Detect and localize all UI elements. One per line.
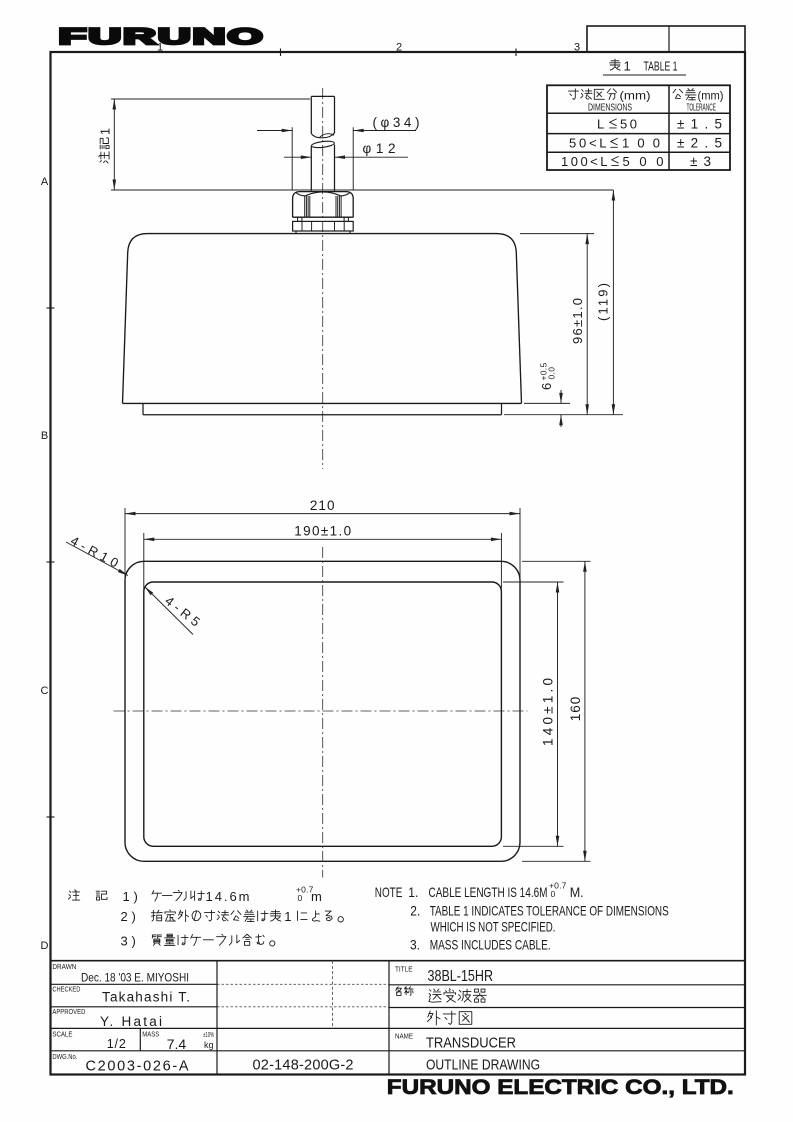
svg-text:(mm): (mm) [698,89,724,103]
svg-text:B: B [41,430,48,442]
svg-text:96±1.0: 96±1.0 [570,298,585,344]
svg-text:2: 2 [396,42,402,54]
svg-text:3: 3 [121,934,128,949]
svg-text:Y. Hatai: Y. Hatai [100,1014,162,1029]
svg-text:DRAWN: DRAWN [52,964,76,971]
svg-text:D: D [41,940,49,952]
svg-text:SCALE: SCALE [52,1032,72,1039]
svg-text:TOLERANCE: TOLERANCE [687,102,717,113]
svg-text:100: 100 [622,136,660,151]
svg-text:Takahashi T.: Takahashi T. [102,990,190,1005]
svg-text:1: 1 [284,909,291,924]
svg-text:WHICH IS NOT SPECIFIED.: WHICH IS NOT SPECIFIED. [431,919,556,935]
svg-text:7.4: 7.4 [167,1036,187,1052]
svg-text:1: 1 [123,889,130,904]
svg-text:CABLE LENGTH IS 14.6M: CABLE LENGTH IS 14.6M [429,884,548,900]
svg-text:APPROVED: APPROVED [52,1009,85,1016]
svg-text:3.: 3. [410,937,420,953]
svg-text:φ12: φ12 [363,141,396,156]
svg-text:kg: kg [204,1040,214,1050]
svg-text:M.: M. [570,884,584,900]
svg-text:DIMENSIONS: DIMENSIONS [588,102,632,113]
svg-text:NOTE: NOTE [375,884,403,900]
svg-text:TABLE 1: TABLE 1 [644,58,678,73]
svg-text:210: 210 [310,498,336,513]
svg-text:100<L: 100<L [561,154,608,169]
svg-text:L: L [597,116,604,131]
svg-text:): ) [132,909,136,924]
svg-text:1: 1 [99,128,113,135]
svg-text:FURUNO: FURUNO [59,24,265,49]
svg-text:500: 500 [623,154,664,169]
svg-text:1: 1 [624,58,631,73]
svg-text:2: 2 [121,909,128,924]
svg-text:38BL-15HR: 38BL-15HR [428,968,494,985]
svg-text:2.: 2. [410,903,420,919]
svg-text:02-148-200G-2: 02-148-200G-2 [253,1058,354,1074]
svg-text:OUTLINE DRAWING: OUTLINE DRAWING [426,1058,540,1074]
svg-text:0.0: 0.0 [547,367,557,380]
svg-text:C2003-026-A: C2003-026-A [86,1059,189,1075]
svg-text:3: 3 [574,42,580,54]
svg-text:TABLE 1 INDICATES TOLERANCE OF: TABLE 1 INDICATES TOLERANCE OF DIMENSION… [430,903,669,919]
svg-text:160: 160 [568,696,583,722]
svg-text:6: 6 [539,383,554,390]
svg-text:±10%: ±10% [203,1030,214,1039]
svg-text:A: A [41,176,49,188]
svg-text:NAME: NAME [395,1034,413,1041]
svg-text:Dec. 18 '03 E. MIYOSHI: Dec. 18 '03 E. MIYOSHI [81,971,189,985]
svg-text:MASS: MASS [142,1032,159,1039]
svg-text:(mm): (mm) [620,89,651,103]
svg-text:): ) [134,889,138,904]
svg-text:14.6m: 14.6m [206,889,250,904]
svg-text:TITLE: TITLE [395,967,413,974]
svg-text:TRANSDUCER: TRANSDUCER [426,1036,516,1052]
svg-text:1.: 1. [408,884,418,900]
svg-text:0: 0 [298,893,303,903]
svg-text:m: m [311,889,322,904]
svg-text:DWG.No.: DWG.No. [52,1054,77,1061]
svg-text:): ) [132,934,136,949]
svg-text:CHECKED: CHECKED [52,987,80,994]
svg-text:FURUNO ELECTRIC CO., LTD.: FURUNO ELECTRIC CO., LTD. [387,1076,734,1099]
svg-text:MASS INCLUDES CABLE.: MASS INCLUDES CABLE. [430,937,551,953]
svg-text:C: C [41,685,49,697]
svg-text:1/2: 1/2 [107,1037,126,1051]
svg-text:0: 0 [551,889,556,899]
